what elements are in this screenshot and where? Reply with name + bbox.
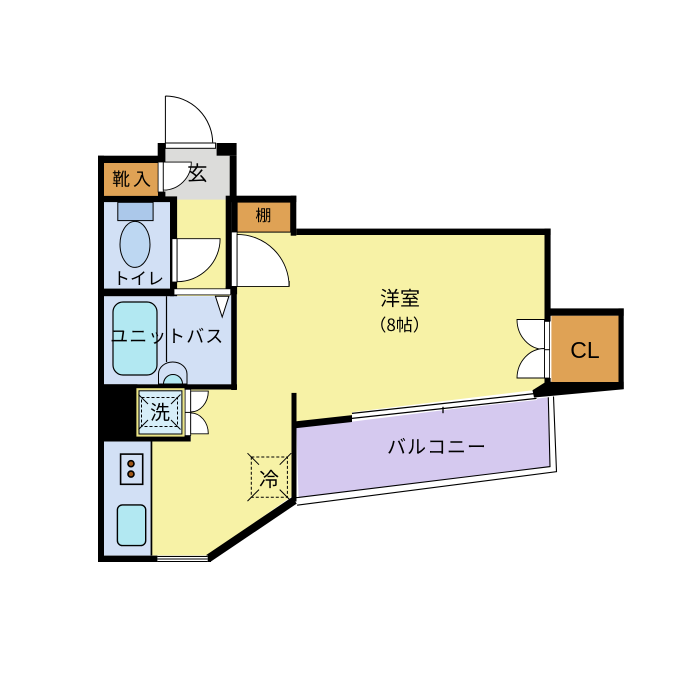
svg-text:CL: CL <box>570 337 600 363</box>
